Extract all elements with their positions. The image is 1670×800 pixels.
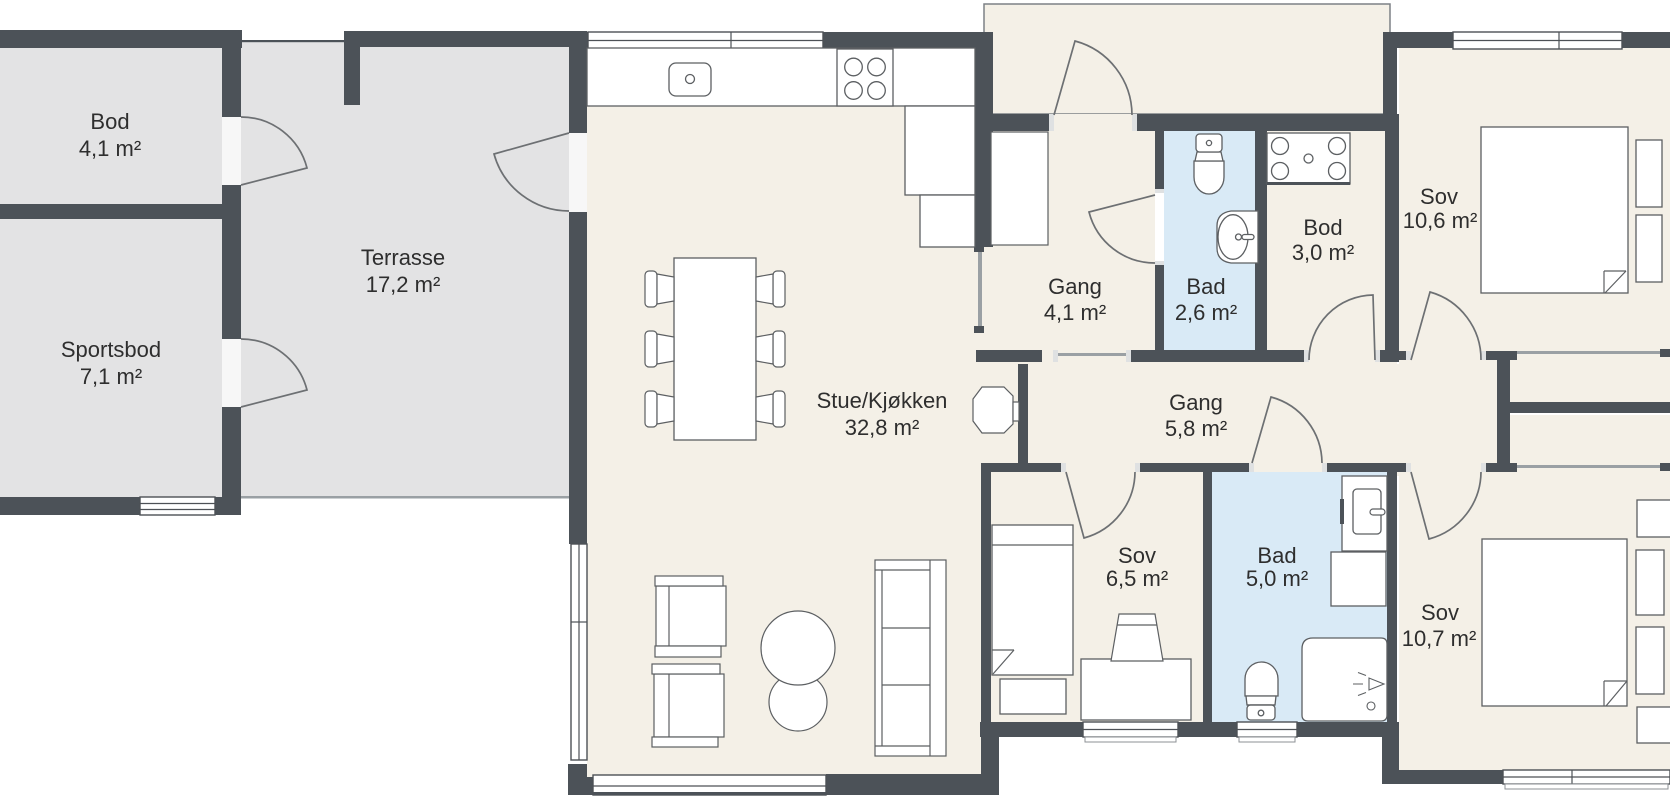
svg-text:Sportsbod: Sportsbod — [61, 337, 161, 362]
svg-text:Bod: Bod — [90, 109, 129, 134]
svg-text:7,1 m²: 7,1 m² — [80, 364, 142, 389]
svg-text:6,5 m²: 6,5 m² — [1106, 566, 1168, 591]
svg-text:Sov: Sov — [1420, 184, 1458, 209]
svg-text:Stue/Kjøkken: Stue/Kjøkken — [817, 388, 948, 413]
svg-text:Gang: Gang — [1048, 274, 1102, 299]
svg-text:10,6 m²: 10,6 m² — [1403, 208, 1478, 233]
svg-text:Terrasse: Terrasse — [361, 245, 445, 270]
svg-text:32,8 m²: 32,8 m² — [845, 415, 920, 440]
svg-text:17,2 m²: 17,2 m² — [366, 272, 441, 297]
svg-text:3,0 m²: 3,0 m² — [1292, 240, 1354, 265]
svg-text:5,0 m²: 5,0 m² — [1246, 566, 1308, 591]
svg-text:2,6 m²: 2,6 m² — [1175, 300, 1237, 325]
svg-text:Sov: Sov — [1118, 543, 1156, 568]
svg-text:Gang: Gang — [1169, 390, 1223, 415]
svg-text:Sov: Sov — [1421, 600, 1459, 625]
svg-text:4,1 m²: 4,1 m² — [1044, 300, 1106, 325]
svg-text:5,8 m²: 5,8 m² — [1165, 416, 1227, 441]
svg-text:Bad: Bad — [1257, 543, 1296, 568]
svg-text:Bod: Bod — [1303, 215, 1342, 240]
svg-text:Bad: Bad — [1186, 274, 1225, 299]
svg-text:4,1 m²: 4,1 m² — [79, 136, 141, 161]
svg-text:10,7 m²: 10,7 m² — [1402, 626, 1477, 651]
